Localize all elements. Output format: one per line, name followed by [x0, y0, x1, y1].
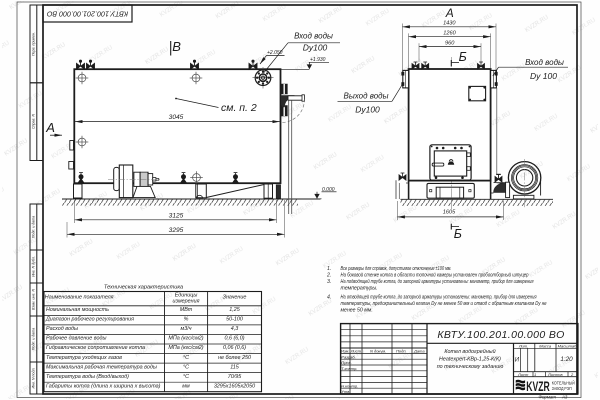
svg-text:Разраб.: Разраб.	[341, 354, 355, 359]
svg-text:Dy 100: Dy 100	[530, 71, 557, 81]
svg-text:1: 1	[534, 372, 536, 377]
svg-text:по техническому заданию: по техническому заданию	[437, 364, 504, 370]
svg-text:3.: 3.	[327, 279, 331, 285]
svg-text:N докум.: N докум.	[370, 348, 386, 353]
svg-text:3045: 3045	[169, 114, 184, 121]
svg-text:температуры, предохранительный: температуры, предохранительный клапан Dy…	[341, 300, 547, 307]
svg-text:Вход воды: Вход воды	[525, 58, 564, 67]
svg-text:%: %	[184, 317, 189, 323]
svg-text:0,6 (6,0): 0,6 (6,0)	[224, 336, 244, 342]
svg-text:Лист: Лист	[350, 348, 362, 353]
svg-text:КОТЕЛЬНЫЙ: КОТЕЛЬНЫЙ	[552, 381, 575, 386]
svg-text:0,06 (0,6): 0,06 (0,6)	[223, 345, 246, 351]
svg-text:А: А	[445, 6, 454, 20]
svg-text:МПа (кгс/см2): МПа (кгс/см2)	[168, 345, 203, 351]
svg-text:КВТУ.100.201.00.000 ВО: КВТУ.100.201.00.000 ВО	[437, 329, 564, 341]
svg-text:1,25: 1,25	[229, 307, 240, 313]
svg-text:А: А	[45, 120, 55, 135]
svg-text:Dy100: Dy100	[303, 43, 328, 53]
svg-text:Котел водогрейный: Котел водогрейный	[444, 348, 495, 355]
svg-text:Масштаб: Масштаб	[558, 343, 577, 348]
svg-text:не более 250: не более 250	[218, 355, 251, 361]
svg-text:Инв. N дубл.: Инв. N дубл.	[32, 256, 36, 277]
svg-text:Н.контр.: Н.контр.	[341, 383, 358, 388]
svg-text:Все размеры для справок, допус: Все размеры для справок, допустимое откл…	[341, 266, 452, 272]
svg-text:Б: Б	[454, 227, 462, 241]
svg-text:Температура воды (Вход/выход): Температура воды (Вход/выход)	[46, 374, 129, 380]
svg-text:Диапазон рабочего регулировани: Диапазон рабочего регулирования	[45, 317, 134, 323]
svg-text:Изм.: Изм.	[341, 348, 350, 353]
svg-text:ЗАВОД РЭП: ЗАВОД РЭП	[552, 386, 572, 391]
svg-text:И: И	[515, 357, 520, 363]
svg-text:Подп. и дата: Подп. и дата	[32, 216, 36, 239]
svg-text:Максимальная рабочая температу: Максимальная рабочая температура воды	[46, 364, 157, 370]
svg-text:Выход воды: Выход воды	[344, 91, 389, 100]
svg-text:4,3: 4,3	[231, 326, 239, 332]
svg-text:1260: 1260	[443, 31, 456, 37]
svg-text:Подп. и дата: Подп. и дата	[32, 328, 36, 351]
svg-text:Лит.: Лит.	[518, 343, 528, 348]
svg-text:Формат: Формат	[539, 394, 557, 399]
svg-text:Температура уходящих газов: Температура уходящих газов	[46, 355, 122, 361]
svg-text:Лист: Лист	[517, 372, 529, 377]
svg-text:KVZR: KVZR	[526, 378, 550, 394]
svg-text:МВт: МВт	[180, 307, 193, 313]
svg-text:На подводящей трубе котла, д: На подводящей трубе котла, до запорной а…	[341, 278, 534, 285]
svg-text:Расход воды: Расход воды	[46, 326, 78, 332]
svg-text:Dy100: Dy100	[355, 105, 380, 115]
svg-text:В: В	[172, 39, 181, 54]
svg-text:70/95: 70/95	[228, 374, 242, 380]
svg-text:1:20: 1:20	[560, 356, 573, 363]
svg-text:температуры.: температуры.	[341, 286, 378, 292]
svg-text:На отводящей трубе котла ,до з: На отводящей трубе котла ,до запорной ар…	[341, 294, 537, 301]
svg-text:Техническая характеристика: Техническая характеристика	[104, 285, 183, 291]
svg-text:Гидравлическое сопротивление к: Гидравлическое сопротивление котла	[46, 345, 145, 351]
svg-text:менее 50 мм.: менее 50 мм.	[341, 308, 373, 314]
svg-text:1430: 1430	[443, 21, 456, 27]
svg-text:Пров.: Пров.	[341, 360, 352, 365]
svg-text:Подп.: Подп.	[396, 348, 407, 353]
svg-text:МПа (кгс/см2): МПа (кгс/см2)	[168, 336, 203, 342]
svg-text:4.: 4.	[327, 295, 331, 301]
svg-text:мм: мм	[182, 383, 190, 389]
svg-text:см. п. 2: см. п. 2	[221, 102, 257, 114]
svg-text:Единицы: Единицы	[175, 292, 198, 298]
svg-text:Рабочее давление воды: Рабочее давление воды	[46, 336, 106, 342]
svg-text:Утв.: Утв.	[341, 389, 350, 394]
svg-text:3295: 3295	[169, 227, 184, 234]
svg-text:Номинальная мощность: Номинальная мощность	[46, 307, 109, 313]
svg-text:Наименование показателя: Наименование показателя	[45, 294, 114, 300]
svg-text:°С: °С	[183, 355, 189, 361]
svg-text:960: 960	[445, 40, 455, 46]
svg-text:Перв. примен.: Перв. примен.	[32, 32, 36, 56]
svg-text:Heatexpert-КВр-1,25-К(К): Heatexpert-КВр-1,25-К(К)	[439, 357, 501, 363]
svg-text:Вход воды: Вход воды	[294, 32, 333, 41]
svg-text:А3: А3	[561, 394, 568, 399]
svg-text:1605: 1605	[443, 209, 456, 215]
svg-text:Габариты котла (длина х ширина: Габариты котла (длина х ширина х высота)	[46, 383, 161, 389]
svg-text:Т.контр.: Т.контр.	[341, 366, 357, 371]
svg-text:Значение: Значение	[223, 295, 247, 301]
svg-text:°С: °С	[183, 374, 189, 380]
svg-text:Инв. N подл.: Инв. N подл.	[32, 367, 36, 388]
svg-text:2.: 2.	[326, 273, 331, 279]
svg-text:измерения: измерения	[173, 299, 200, 305]
svg-text:°С: °С	[183, 364, 189, 370]
svg-text:3125: 3125	[169, 212, 184, 219]
svg-text:КВТУ.100.201.00.000 ВО: КВТУ.100.201.00.000 ВО	[47, 9, 129, 18]
svg-text:3295х1605х2050: 3295х1605х2050	[214, 383, 255, 389]
svg-text:Листов: Листов	[547, 372, 563, 377]
svg-text:115: 115	[230, 364, 240, 370]
svg-text:Масса: Масса	[539, 343, 552, 348]
svg-text:Взам. инв. N: Взам. инв. N	[32, 289, 36, 310]
svg-text:1.: 1.	[327, 266, 331, 272]
svg-text:50-100: 50-100	[226, 317, 243, 323]
svg-text:На боковой стенке котла в обла: На боковой стенке котла в области топочн…	[341, 272, 529, 279]
svg-text:м3/ч: м3/ч	[181, 326, 192, 332]
svg-text:Дата: Дата	[413, 348, 425, 353]
svg-text:Справ. N: Справ. N	[32, 114, 36, 129]
svg-text:Б: Б	[459, 50, 467, 64]
